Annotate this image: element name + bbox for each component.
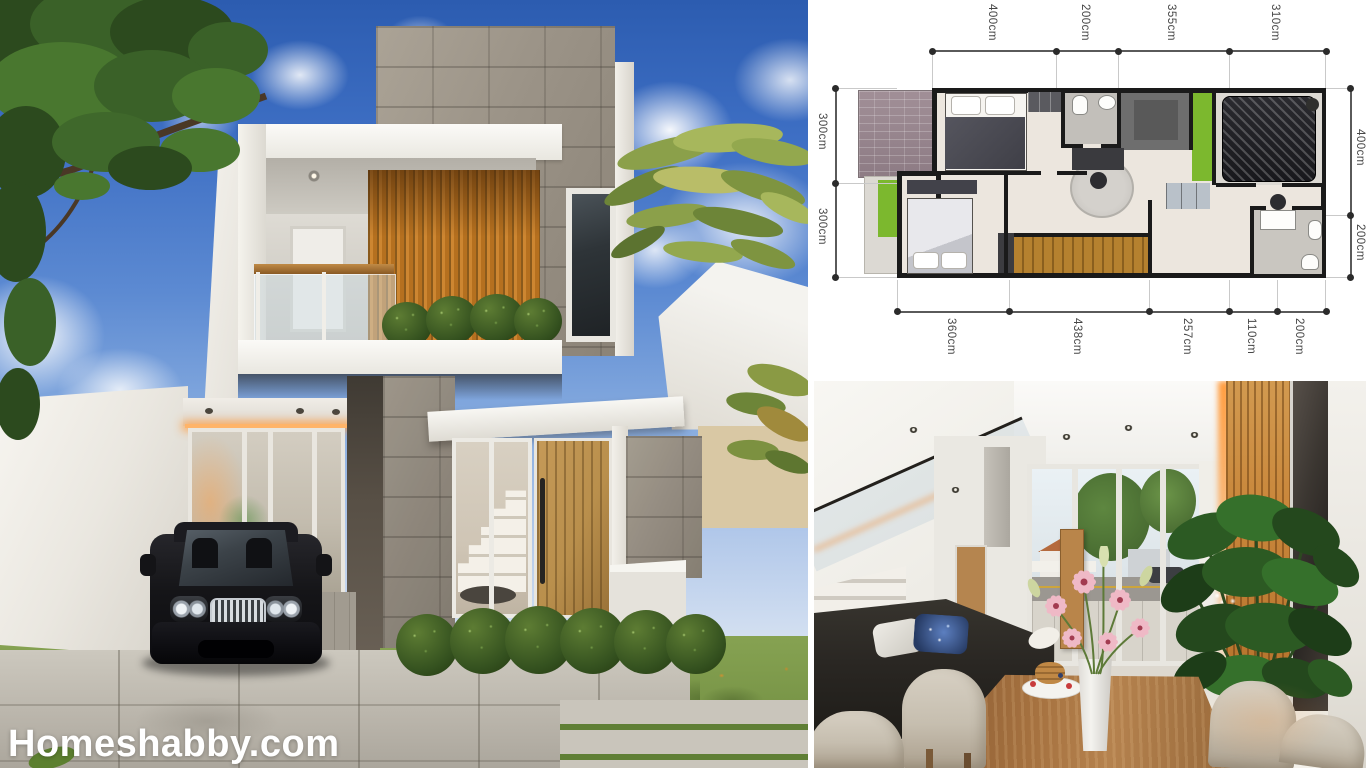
entry-rug bbox=[460, 586, 516, 604]
dim-dot bbox=[832, 85, 839, 92]
sink-icon bbox=[1308, 220, 1322, 240]
dim-label-top-3: 355cm bbox=[1165, 4, 1177, 41]
wall bbox=[1250, 206, 1254, 278]
dim-dot bbox=[1115, 48, 1122, 55]
dim-ext bbox=[1229, 280, 1230, 311]
wall bbox=[1189, 88, 1193, 150]
dim-ext bbox=[837, 88, 897, 89]
car-headlight-left bbox=[170, 596, 208, 622]
dim-dot bbox=[1347, 85, 1354, 92]
dim-label-bottom-5: 200cm bbox=[1293, 318, 1305, 355]
car-intake bbox=[198, 640, 274, 658]
car-seat-silhouette bbox=[246, 538, 272, 568]
dim-label-bottom-1: 360cm bbox=[945, 318, 957, 355]
dim-label-right-1: 400cm bbox=[1354, 129, 1366, 166]
shrub bbox=[396, 614, 458, 676]
wall bbox=[1117, 88, 1121, 148]
soffit-downlight bbox=[296, 408, 304, 414]
chair-leg bbox=[964, 753, 971, 768]
tree-right-icon bbox=[598, 104, 808, 284]
dim-ext bbox=[897, 280, 898, 311]
front-door bbox=[534, 438, 612, 618]
wall bbox=[1292, 206, 1326, 210]
entry-glass-mullion bbox=[489, 440, 494, 616]
wall bbox=[1282, 183, 1322, 187]
dim-dot bbox=[1323, 48, 1330, 55]
bed-master-blanket bbox=[945, 117, 1025, 169]
tv-console bbox=[907, 180, 977, 194]
car-headlight-right bbox=[264, 596, 302, 622]
dim-ext bbox=[1229, 52, 1230, 88]
dim-label-bottom-4: 110cm bbox=[1245, 318, 1257, 354]
dim-dot bbox=[1274, 308, 1281, 315]
pillow bbox=[913, 252, 939, 269]
railing-post bbox=[322, 272, 326, 344]
sofa-pillow-galaxy bbox=[913, 613, 970, 655]
dim-label-top-2: 200cm bbox=[1079, 4, 1091, 41]
wall bbox=[1216, 183, 1256, 187]
stone-side-wall bbox=[626, 436, 702, 578]
dim-ext bbox=[1325, 280, 1326, 311]
dim-ext bbox=[837, 183, 897, 184]
car-top-view bbox=[1222, 96, 1316, 182]
collage-root: Homeshabby.com bbox=[0, 0, 1366, 768]
wall bbox=[1061, 88, 1065, 148]
balcony-planter-band bbox=[238, 340, 562, 374]
dim-line-bottom bbox=[897, 311, 1326, 313]
dim-dot bbox=[832, 274, 839, 281]
dim-label-bottom-2: 438cm bbox=[1071, 318, 1083, 355]
car-windshield bbox=[168, 530, 304, 586]
berry bbox=[1066, 683, 1072, 689]
pillow bbox=[985, 96, 1015, 115]
dim-ext bbox=[1056, 52, 1057, 88]
door-handle bbox=[540, 478, 545, 584]
garden-strip-left bbox=[878, 180, 898, 237]
dim-dot bbox=[1226, 308, 1233, 315]
wall bbox=[1061, 144, 1083, 148]
dim-label-bottom-3: 257cm bbox=[1181, 318, 1193, 355]
balcony-shrub bbox=[514, 298, 562, 344]
wall bbox=[1057, 171, 1087, 175]
watermark: Homeshabby.com bbox=[8, 723, 339, 766]
dim-ext bbox=[1325, 52, 1326, 88]
floor-plan-panel: 400cm 200cm 355cm 310cm 300cm 300cm 400c… bbox=[814, 0, 1366, 377]
courtyard-tiles bbox=[1166, 183, 1210, 209]
foliage-right-icon bbox=[698, 358, 808, 480]
plan-plant-pot bbox=[1306, 98, 1319, 111]
pillow bbox=[941, 252, 967, 269]
wall bbox=[1004, 175, 1008, 278]
flower-bouquet-icon bbox=[1014, 546, 1174, 676]
dim-line-right bbox=[1350, 88, 1352, 278]
balcony-downlight bbox=[308, 170, 320, 182]
dim-ext bbox=[1009, 280, 1010, 311]
car-seat-silhouette bbox=[192, 538, 218, 568]
dim-label-right-2: 200cm bbox=[1354, 224, 1366, 261]
dim-label-top-4: 310cm bbox=[1269, 4, 1281, 41]
dim-dot bbox=[1323, 308, 1330, 315]
shrub bbox=[666, 614, 726, 674]
toilet-icon bbox=[1301, 254, 1319, 270]
desk-chair bbox=[1090, 172, 1107, 189]
car-mirror bbox=[140, 554, 156, 576]
vanity-desk bbox=[1260, 210, 1296, 230]
dim-ext bbox=[1277, 280, 1278, 311]
dim-label-left-1: 300cm bbox=[816, 113, 828, 150]
dim-ext bbox=[1149, 280, 1150, 311]
soffit-downlight bbox=[332, 409, 340, 415]
downlight-icon bbox=[1190, 432, 1199, 438]
dim-dot bbox=[1006, 308, 1013, 315]
wall bbox=[1148, 200, 1152, 278]
toilet-icon bbox=[1072, 95, 1088, 115]
chair-leg bbox=[926, 749, 933, 768]
dim-dot bbox=[832, 180, 839, 187]
dim-label-left-2: 300cm bbox=[816, 208, 828, 245]
kitchen-island bbox=[1134, 100, 1178, 140]
courtyard-garden bbox=[1192, 93, 1212, 181]
pillow bbox=[951, 96, 981, 115]
vanity-chair bbox=[1270, 194, 1286, 210]
dim-dot bbox=[929, 48, 936, 55]
closet bbox=[1028, 92, 1062, 112]
sink-icon bbox=[1098, 95, 1116, 110]
exterior-render-panel: Homeshabby.com bbox=[0, 0, 808, 768]
interior-render-panel bbox=[814, 381, 1366, 768]
berry bbox=[1030, 681, 1036, 687]
downlight-icon bbox=[1124, 425, 1133, 431]
walkway-right bbox=[560, 700, 808, 768]
car-mirror bbox=[316, 554, 332, 576]
desk bbox=[1072, 148, 1124, 170]
terrace-brick bbox=[858, 90, 934, 178]
downlight-icon bbox=[951, 487, 960, 493]
dim-dot bbox=[1053, 48, 1060, 55]
balcony-fascia bbox=[238, 124, 562, 160]
stairs-plan bbox=[1014, 233, 1150, 273]
dim-dot bbox=[1347, 274, 1354, 281]
dim-ext bbox=[932, 52, 933, 88]
dim-dot bbox=[1226, 48, 1233, 55]
downlight-icon bbox=[1062, 434, 1071, 440]
floor-warm-glow bbox=[1194, 681, 1334, 761]
tree-left-icon bbox=[0, 0, 272, 470]
dim-line-top bbox=[932, 50, 1326, 52]
dim-dot bbox=[1347, 212, 1354, 219]
dim-ext bbox=[837, 277, 897, 278]
dim-dot bbox=[1146, 308, 1153, 315]
wall bbox=[941, 171, 1041, 175]
dim-ext bbox=[1118, 52, 1119, 88]
wall-niche bbox=[984, 447, 1010, 547]
wall bbox=[1212, 88, 1216, 185]
dim-dot bbox=[894, 308, 901, 315]
dim-label-top-1: 400cm bbox=[986, 4, 998, 41]
car bbox=[140, 522, 332, 674]
downlight-icon bbox=[909, 427, 918, 433]
dining-chair bbox=[902, 669, 986, 768]
